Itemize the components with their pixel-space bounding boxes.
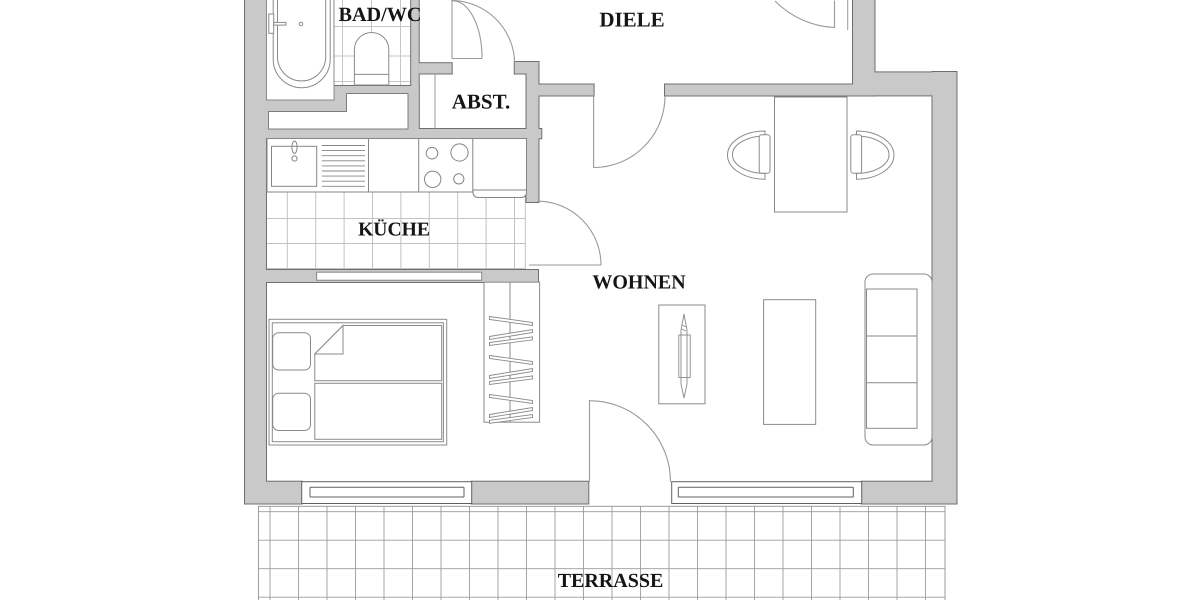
svg-text:DIELE: DIELE	[599, 8, 664, 32]
svg-text:BAD/WC: BAD/WC	[339, 4, 422, 26]
svg-text:KÜCHE: KÜCHE	[358, 219, 430, 241]
svg-text:ABST.: ABST.	[452, 90, 511, 114]
svg-text:WOHNEN: WOHNEN	[592, 272, 686, 294]
svg-text:TERRASSE: TERRASSE	[558, 570, 664, 592]
